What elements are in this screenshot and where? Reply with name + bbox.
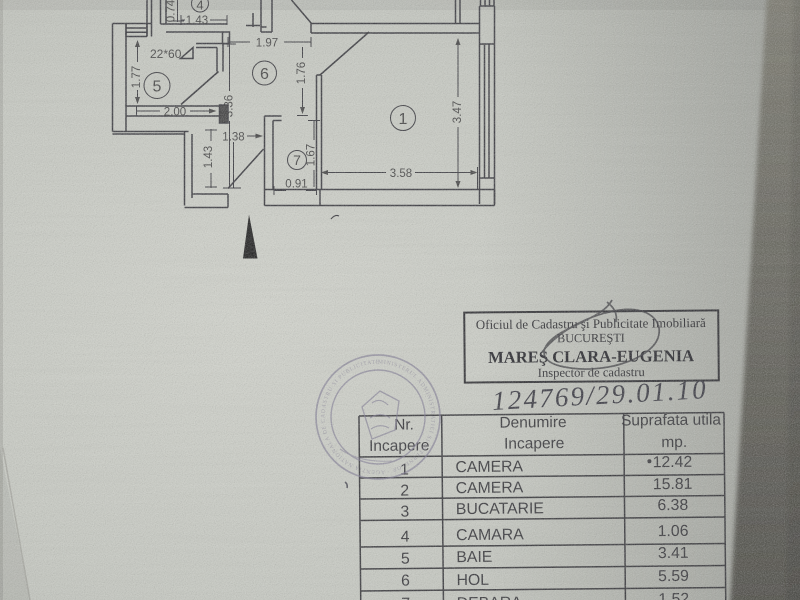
svg-text:mp.: mp.: [661, 434, 687, 451]
svg-text:CAMERA: CAMERA: [455, 458, 523, 476]
svg-text:0.91: 0.91: [285, 179, 307, 191]
svg-text:MAREŞ CLARA-EUGENIA: MAREŞ CLARA-EUGENIA: [488, 346, 694, 367]
svg-text:6: 6: [401, 573, 410, 590]
svg-text:2: 2: [400, 483, 409, 500]
svg-text:Incapere: Incapere: [504, 435, 564, 453]
svg-text:4: 4: [401, 529, 410, 546]
svg-text:7: 7: [401, 596, 410, 600]
svg-text:1: 1: [399, 111, 408, 128]
svg-text:1.67: 1.67: [306, 144, 318, 166]
svg-text:3.36: 3.36: [224, 95, 236, 117]
svg-text:1.77: 1.77: [131, 66, 143, 88]
svg-text:6: 6: [260, 66, 269, 83]
svg-text:1.76: 1.76: [296, 62, 308, 84]
svg-text:CAMERA: CAMERA: [456, 479, 524, 497]
svg-text:3.58: 3.58: [390, 168, 412, 180]
svg-text:CAMARA: CAMARA: [456, 526, 524, 544]
svg-text:4: 4: [196, 0, 203, 13]
svg-text:0.74: 0.74: [166, 0, 178, 22]
svg-text:12.42: 12.42: [653, 454, 693, 471]
svg-text:Suprafata utila: Suprafata utila: [621, 412, 721, 430]
svg-text:5: 5: [153, 79, 162, 96]
svg-text:DEBARA: DEBARA: [457, 594, 523, 600]
svg-text:HOL: HOL: [456, 572, 489, 589]
svg-text:3.47: 3.47: [452, 101, 464, 123]
svg-text:1.38: 1.38: [222, 132, 244, 144]
svg-text:22*60: 22*60: [150, 47, 182, 61]
svg-text:1.43: 1.43: [186, 15, 208, 27]
svg-text:1.52: 1.52: [658, 591, 689, 600]
svg-text:15.81: 15.81: [653, 476, 693, 493]
svg-text:3: 3: [400, 504, 409, 521]
svg-text:5.59: 5.59: [658, 568, 689, 585]
svg-text:6.38: 6.38: [657, 497, 688, 514]
svg-text:1.43: 1.43: [203, 146, 215, 168]
svg-text:5: 5: [401, 551, 410, 568]
svg-text:1.97: 1.97: [256, 38, 278, 50]
svg-text:BUCUREŞTI: BUCUREŞTI: [557, 331, 625, 346]
svg-text:3.41: 3.41: [658, 545, 689, 562]
svg-text:BAIE: BAIE: [456, 549, 492, 566]
svg-text:Denumire: Denumire: [499, 414, 566, 432]
svg-text:2.00: 2.00: [164, 107, 186, 119]
svg-text:BUCATARIE: BUCATARIE: [456, 500, 544, 518]
svg-text:7: 7: [293, 152, 301, 168]
svg-text:1.06: 1.06: [658, 523, 689, 540]
